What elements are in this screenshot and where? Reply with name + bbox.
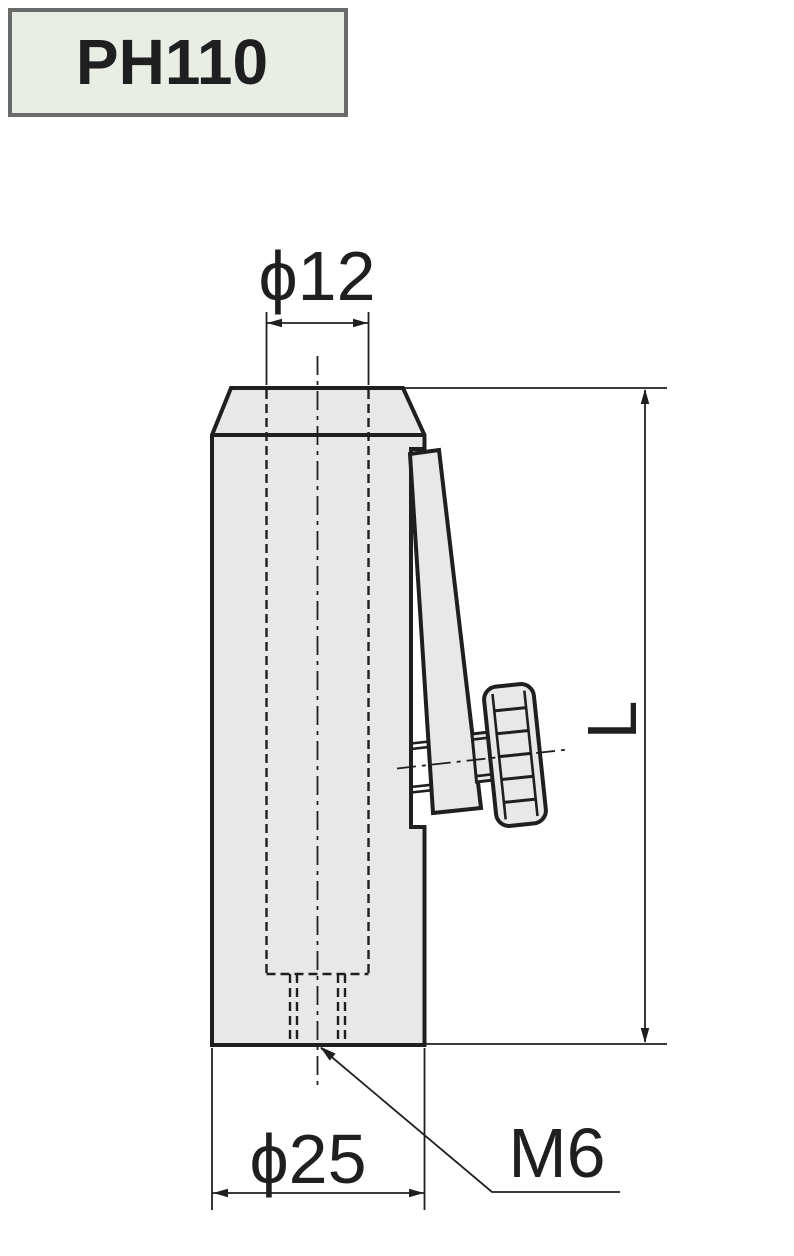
dim-length-label: L (573, 701, 651, 740)
drawing-page: PH110 (0, 0, 794, 1256)
dim-top-diameter-label: ϕ12 (258, 237, 375, 315)
model-label-box: PH110 (10, 10, 346, 115)
dim-top-arrow-left (267, 319, 282, 328)
dim-bottom-arrow-left (213, 1189, 228, 1198)
dim-bottom-diameter-label: ϕ25 (249, 1120, 366, 1198)
dim-length-arrow-bottom (641, 1028, 650, 1043)
dim-top-arrow-right (353, 319, 368, 328)
technical-drawing: PH110 (0, 0, 794, 1256)
dim-length-arrow-top (641, 389, 650, 404)
clamp-lever (410, 450, 481, 813)
thread-label: M6 (508, 1114, 605, 1192)
dim-bottom-arrow-right (409, 1189, 424, 1198)
model-label: PH110 (76, 26, 268, 98)
